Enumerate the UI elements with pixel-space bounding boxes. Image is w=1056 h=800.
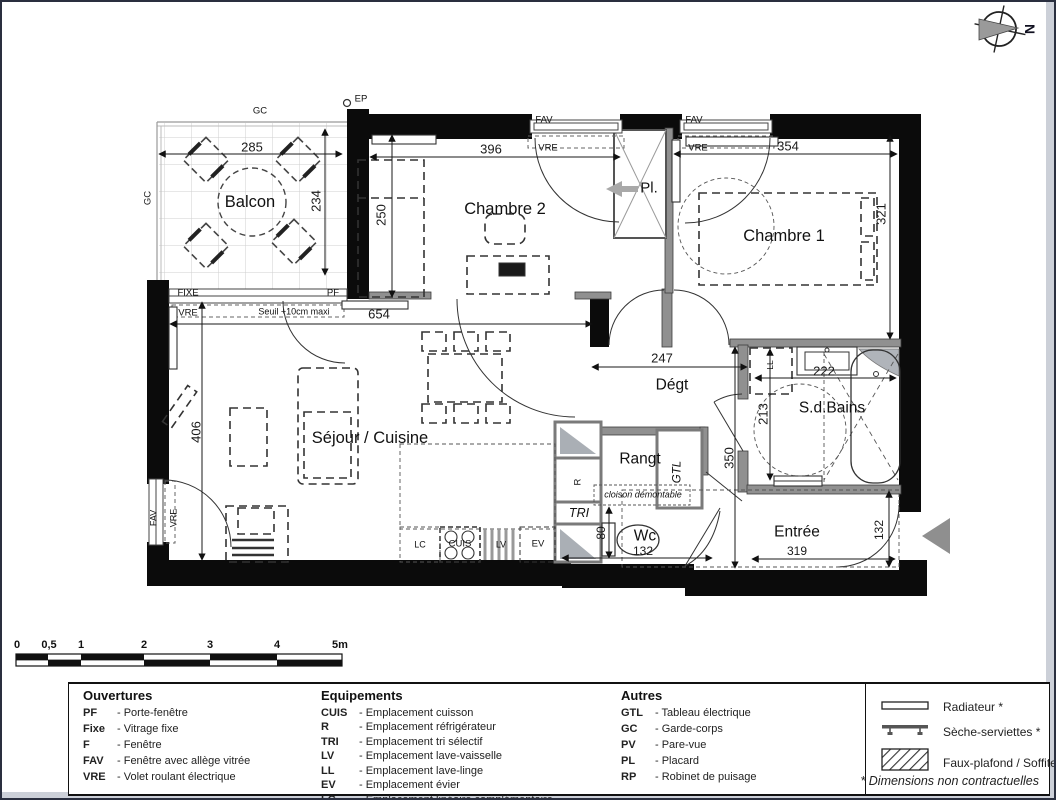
room-label-sejour-cuisine: Séjour / Cuisine bbox=[312, 430, 428, 447]
dim-sdb-width: 222 bbox=[813, 365, 835, 378]
dim-chambre2-width: 396 bbox=[480, 143, 502, 156]
legend-item: LC- Emplacement linéaire complémentaire bbox=[321, 794, 591, 800]
vre-label-chambre2: VRE bbox=[538, 143, 558, 153]
room-label-placard: Pl. bbox=[640, 181, 658, 196]
cuis-label: CUIS bbox=[449, 539, 472, 549]
legend-symbols: Radiateur * Sèche-serviettes * bbox=[881, 698, 1056, 784]
legend-ouvertures-title: Ouvertures bbox=[83, 688, 313, 703]
legend-item: PL- Placard bbox=[621, 755, 851, 768]
dim-chambre2-height: 250 bbox=[375, 204, 388, 226]
fav-label-chambre1: FAV bbox=[685, 115, 702, 125]
room-label-degagement: Dégt bbox=[656, 377, 689, 393]
room-label-chambre1: Chambre 1 bbox=[743, 228, 825, 245]
legend-item: EV- Emplacement évier bbox=[321, 779, 591, 792]
scale-bar bbox=[16, 654, 342, 666]
ep-point bbox=[344, 100, 351, 107]
floor-plan-graphic bbox=[2, 2, 1056, 800]
legend-item: F- Fenêtre bbox=[83, 739, 313, 752]
gc-top-label: GC bbox=[253, 106, 267, 116]
tri-label: TRI bbox=[569, 507, 589, 520]
faux-plafond-icon bbox=[881, 748, 933, 777]
legend-item: GC- Garde-corps bbox=[621, 723, 851, 736]
legend-item: Fixe- Vitrage fixe bbox=[83, 723, 313, 736]
legend-item: LV- Emplacement lave-vaisselle bbox=[321, 750, 591, 763]
legend-item: TRI- Emplacement tri sélectif bbox=[321, 736, 591, 749]
fixe-label: FIXE bbox=[177, 288, 198, 298]
scale-tick-3: 3 bbox=[207, 639, 213, 651]
vre-label-balcon: VRE bbox=[178, 308, 198, 318]
dim-chambre1-height: 321 bbox=[875, 203, 888, 225]
legend-equipements: Equipements CUIS- Emplacement cuisson R-… bbox=[321, 688, 591, 800]
scale-tick-05: 0,5 bbox=[41, 639, 56, 651]
scale-tick-4: 4 bbox=[274, 639, 280, 651]
room-label-sdb: S.d.Bains bbox=[799, 400, 865, 416]
cloison-label: cloison démontable bbox=[604, 491, 682, 500]
towel-radiator-icon bbox=[881, 723, 933, 741]
legend-item: FAV- Fenêtre avec allège vitrée bbox=[83, 755, 313, 768]
dim-degt-width: 247 bbox=[651, 352, 673, 365]
floor-plan-sheet: Balcon Chambre 2 Chambre 1 Pl. Séjour / … bbox=[0, 0, 1056, 800]
room-label-rangement: Rangt bbox=[619, 451, 660, 467]
dim-chambre1-width: 354 bbox=[777, 140, 799, 153]
legend-autres: Autres GTL- Tableau électrique GC- Garde… bbox=[621, 688, 851, 787]
fridge-label: R bbox=[573, 479, 583, 486]
dimensions-note: * Dimensions non contractuelles bbox=[860, 774, 1039, 788]
legend-autres-title: Autres bbox=[621, 688, 851, 703]
dim-sdb-height: 213 bbox=[757, 403, 770, 425]
fav-label-chambre2: FAV bbox=[535, 115, 552, 125]
ll-label: LL bbox=[766, 360, 775, 369]
room-label-wc: Wc bbox=[634, 528, 656, 544]
legend-item: R- Emplacement réfrigérateur bbox=[321, 721, 591, 734]
dim-balcon-height: 234 bbox=[310, 190, 323, 212]
entry-arrow-icon bbox=[922, 518, 950, 554]
dim-sejour-height: 406 bbox=[190, 421, 203, 443]
lv-label: LV bbox=[496, 541, 506, 550]
legend-item: PF- Porte-fenêtre bbox=[83, 707, 313, 720]
legend-symbol-faux-plafond: Faux-plafond / Soffite bbox=[881, 748, 1056, 777]
dim-balcon-width: 285 bbox=[241, 141, 263, 154]
vre-label-left: VRE bbox=[170, 509, 179, 528]
pf-label: PF bbox=[327, 288, 339, 298]
gtl-label: GTL bbox=[672, 461, 684, 483]
dim-wc-height: 80 bbox=[595, 526, 607, 539]
radiator-icon bbox=[881, 698, 933, 716]
dim-couloir-height: 350 bbox=[723, 447, 736, 469]
legend-item: VRE- Volet roulant électrique bbox=[83, 771, 313, 784]
dim-entree-width: 319 bbox=[787, 545, 807, 557]
seuil-label: Seuil +10cm maxi bbox=[258, 308, 329, 317]
fav-label-left: FAV bbox=[150, 510, 159, 526]
room-label-chambre2: Chambre 2 bbox=[464, 201, 546, 218]
lc-label: LC bbox=[414, 541, 426, 550]
legend-item: GTL- Tableau électrique bbox=[621, 707, 851, 720]
legend-symbol-radiator: Radiateur * bbox=[881, 698, 1056, 716]
room-label-entree: Entrée bbox=[774, 524, 820, 540]
dim-wc-width: 132 bbox=[633, 545, 653, 557]
dim-sejour-width: 654 bbox=[368, 308, 390, 321]
scale-tick-0: 0 bbox=[14, 639, 20, 651]
vre-label-chambre1: VRE bbox=[688, 143, 708, 153]
scale-tick-1: 1 bbox=[78, 639, 84, 651]
legend-symbol-towel-radiator: Sèche-serviettes * bbox=[881, 723, 1056, 741]
legend-item: CUIS- Emplacement cuisson bbox=[321, 707, 591, 720]
legend-ouvertures: Ouvertures PF- Porte-fenêtre Fixe- Vitra… bbox=[83, 688, 313, 787]
room-label-balcon: Balcon bbox=[225, 194, 275, 211]
ev-label: EV bbox=[532, 539, 545, 549]
ep-label: EP bbox=[355, 94, 368, 104]
legend-equipements-title: Equipements bbox=[321, 688, 591, 703]
north-label: N bbox=[1022, 24, 1038, 34]
legend-item: LL- Emplacement lave-linge bbox=[321, 765, 591, 778]
legend-item: PV- Pare-vue bbox=[621, 739, 851, 752]
legend-item: RP- Robinet de puisage bbox=[621, 771, 851, 784]
dim-entree-height: 132 bbox=[873, 520, 885, 540]
legend-panel: Ouvertures PF- Porte-fenêtre Fixe- Vitra… bbox=[68, 682, 1050, 796]
gc-left-label: GC bbox=[143, 191, 153, 205]
scale-tick-5m: 5m bbox=[332, 639, 348, 651]
scale-tick-2: 2 bbox=[141, 639, 147, 651]
